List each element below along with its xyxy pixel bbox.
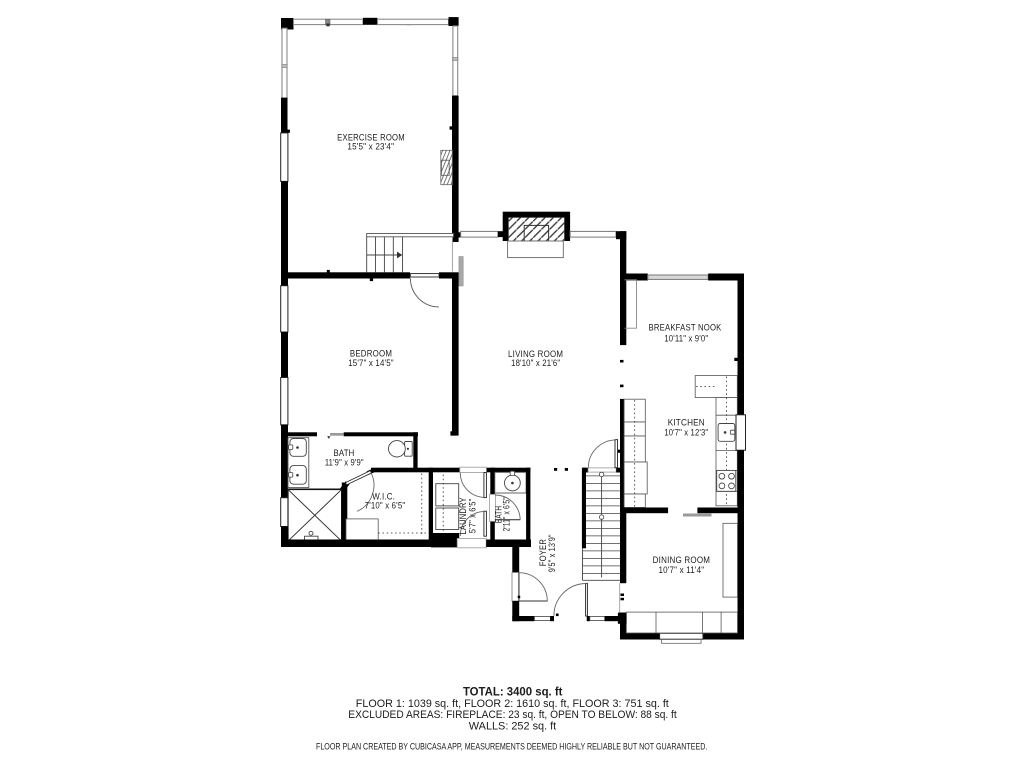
svg-text:FLOOR PLAN CREATED BY CUBICASA: FLOOR PLAN CREATED BY CUBICASA APP, MEAS… xyxy=(316,742,707,752)
svg-text:10'7" x 11'4": 10'7" x 11'4" xyxy=(659,565,705,575)
svg-text:TOTAL: 3400 sq. ft: TOTAL: 3400 sq. ft xyxy=(463,685,563,699)
svg-text:LAUNDRY: LAUNDRY xyxy=(458,497,468,534)
svg-text:15'7" x 14'5": 15'7" x 14'5" xyxy=(348,358,394,368)
svg-text:11'9" x 9'9": 11'9" x 9'9" xyxy=(325,457,364,467)
svg-text:10'11" x 9'0": 10'11" x 9'0" xyxy=(664,334,708,344)
svg-text:15'5" x 23'4": 15'5" x 23'4" xyxy=(347,142,394,152)
svg-text:9'5" x 13'9": 9'5" x 13'9" xyxy=(547,534,557,572)
svg-text:10'7" x 12'3": 10'7" x 12'3" xyxy=(664,428,708,438)
svg-text:WALLS: 252 sq. ft: WALLS: 252 sq. ft xyxy=(469,721,557,733)
svg-text:2'11" x 6'5": 2'11" x 6'5" xyxy=(502,497,512,531)
svg-text:FLOOR 1: 1039 sq. ft, FLOOR 2:: FLOOR 1: 1039 sq. ft, FLOOR 2: 1610 sq. … xyxy=(356,698,670,710)
svg-text:BREAKFAST NOOK: BREAKFAST NOOK xyxy=(649,323,723,333)
svg-text:5'7" x 6'5": 5'7" x 6'5" xyxy=(468,499,478,534)
svg-text:DINING ROOM: DINING ROOM xyxy=(653,555,711,565)
svg-text:7'10" x 6'5": 7'10" x 6'5" xyxy=(365,500,406,510)
svg-text:EXCLUDED AREAS: FIREPLACE: 23: EXCLUDED AREAS: FIREPLACE: 23 sq. ft, OP… xyxy=(348,709,677,721)
svg-text:18'10" x 21'6": 18'10" x 21'6" xyxy=(511,358,560,368)
svg-text:KITCHEN: KITCHEN xyxy=(668,418,705,428)
